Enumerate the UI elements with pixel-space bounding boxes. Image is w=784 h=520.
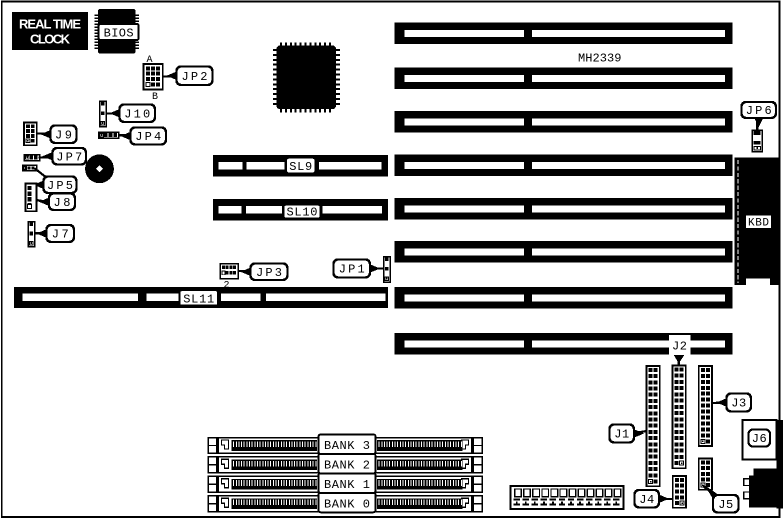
svg-text:JP2: JP2 bbox=[182, 70, 208, 84]
svg-text:SL9: SL9 bbox=[289, 160, 312, 174]
svg-text:J3: J3 bbox=[731, 397, 746, 411]
svg-text:BANK 2: BANK 2 bbox=[324, 458, 370, 472]
svg-text:BANK 0: BANK 0 bbox=[324, 497, 370, 511]
svg-text:BANK 3: BANK 3 bbox=[324, 439, 370, 453]
svg-text:J2: J2 bbox=[672, 340, 687, 354]
svg-text:J5: J5 bbox=[718, 498, 733, 512]
svg-text:B: B bbox=[152, 92, 158, 103]
svg-text:BANK 1: BANK 1 bbox=[324, 478, 370, 492]
svg-text:BIOS: BIOS bbox=[104, 26, 134, 40]
svg-text:J4: J4 bbox=[639, 493, 654, 507]
svg-text:JP4: JP4 bbox=[135, 130, 161, 144]
svg-text:J10: J10 bbox=[124, 107, 150, 121]
svg-text:J1: J1 bbox=[614, 428, 629, 442]
svg-text:JP6: JP6 bbox=[746, 104, 772, 118]
svg-text:KBD: KBD bbox=[748, 218, 769, 230]
svg-text:CLOCK: CLOCK bbox=[30, 32, 71, 47]
svg-text:REAL TIME: REAL TIME bbox=[19, 17, 81, 32]
svg-text:JP1: JP1 bbox=[339, 263, 365, 277]
svg-text:JP3: JP3 bbox=[256, 266, 282, 280]
svg-text:SL10: SL10 bbox=[287, 206, 318, 220]
svg-text:JP5: JP5 bbox=[47, 179, 73, 193]
svg-text:SL11: SL11 bbox=[183, 292, 214, 306]
svg-text:J6: J6 bbox=[752, 432, 767, 446]
svg-text:MH2339: MH2339 bbox=[578, 52, 622, 66]
svg-text:JP7: JP7 bbox=[56, 150, 82, 164]
